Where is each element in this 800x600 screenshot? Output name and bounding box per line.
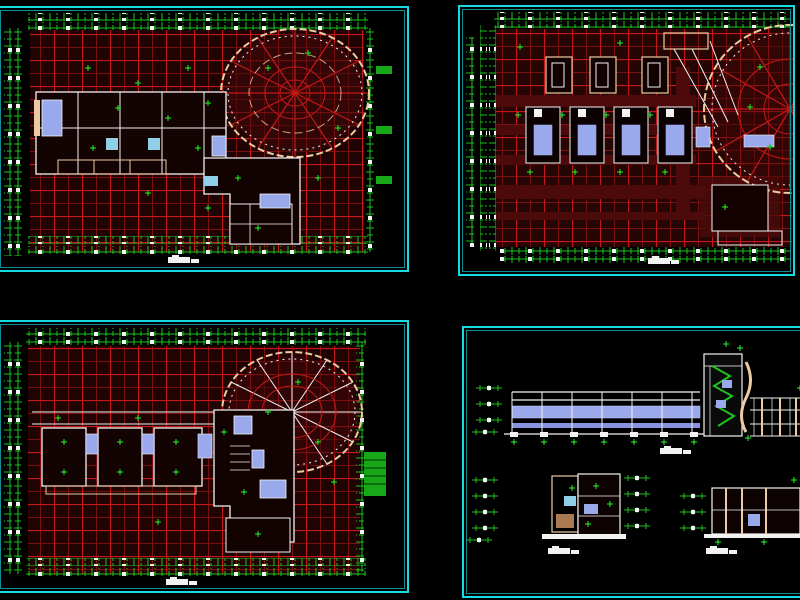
panel-enlarged-plan	[458, 5, 795, 276]
right-section-fragment	[750, 385, 800, 436]
panel-floor-plan-1	[0, 6, 409, 272]
sections-drawing	[464, 328, 800, 596]
panel-sections-details	[462, 326, 800, 598]
drawing-title-blob	[166, 577, 197, 585]
floor-plan-1-drawing	[0, 8, 407, 270]
long-building-section	[472, 385, 704, 445]
drawing-title-blob	[168, 255, 199, 263]
green-note-block	[364, 452, 386, 496]
enlarged-plan-drawing	[460, 7, 793, 274]
detail-right	[680, 477, 800, 554]
panel-floor-plan-2	[0, 320, 409, 593]
stair-tower-section	[704, 341, 751, 441]
cad-sheet-background: { "app": { "type": "cad-drawing-sheet", …	[0, 0, 800, 600]
floor-plan-2-drawing	[0, 322, 407, 591]
section-title-blob	[660, 446, 691, 454]
detail-left	[466, 474, 650, 554]
